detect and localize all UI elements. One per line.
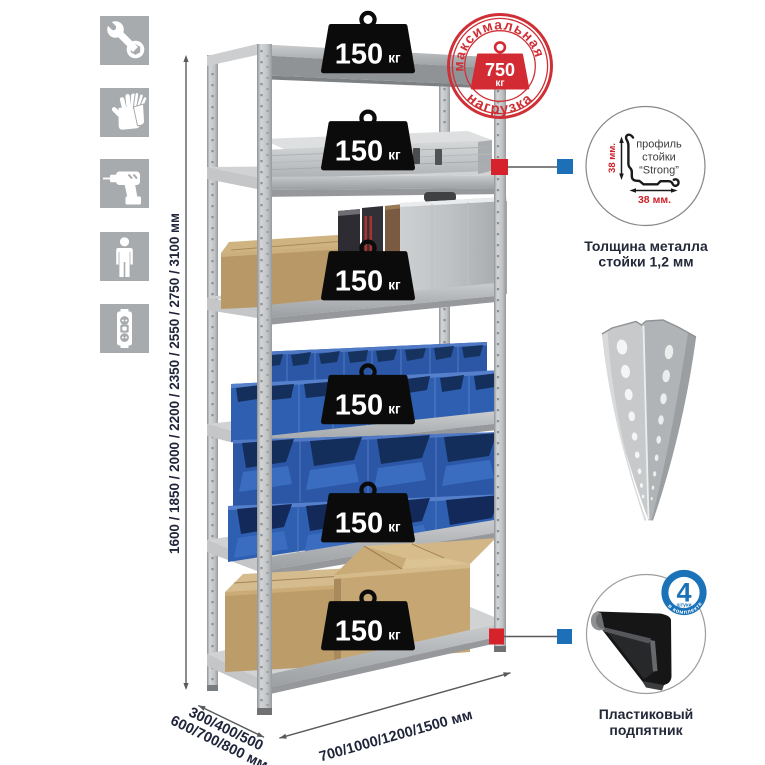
svg-text:кг: кг bbox=[388, 51, 401, 66]
svg-text:кг: кг bbox=[388, 520, 401, 535]
svg-text:Толщина металла: Толщина металла bbox=[584, 238, 708, 254]
svg-text:38 мм.: 38 мм. bbox=[638, 194, 671, 206]
svg-text:150: 150 bbox=[335, 616, 383, 648]
svg-text:подпятник: подпятник bbox=[609, 722, 683, 738]
svg-text:150: 150 bbox=[335, 389, 383, 421]
svg-text:кг: кг bbox=[388, 148, 401, 163]
svg-text:кг: кг bbox=[495, 78, 504, 89]
svg-text:38 мм.: 38 мм. bbox=[607, 143, 618, 173]
svg-text:700/1000/1200/1500 мм: 700/1000/1200/1500 мм bbox=[317, 707, 474, 765]
svg-text:стойки 1,2 мм: стойки 1,2 мм bbox=[598, 254, 693, 270]
svg-text:150: 150 bbox=[335, 136, 383, 168]
svg-text:750: 750 bbox=[485, 60, 515, 80]
svg-text:1600 / 1850 / 2000 / 2200 / 23: 1600 / 1850 / 2000 / 2200 / 2350 / 2550 … bbox=[167, 213, 182, 554]
svg-text:штуки: штуки bbox=[676, 602, 691, 608]
svg-text:кг: кг bbox=[388, 278, 401, 293]
svg-text:кг: кг bbox=[388, 401, 401, 416]
svg-text:Пластиковый: Пластиковый bbox=[599, 706, 694, 722]
svg-text:профиль: профиль bbox=[636, 139, 682, 151]
svg-text:150: 150 bbox=[335, 266, 383, 298]
svg-text:стойки: стойки bbox=[642, 152, 676, 164]
svg-text:кг: кг bbox=[388, 628, 401, 643]
svg-text:“Strong”: “Strong” bbox=[639, 165, 679, 177]
svg-text:150: 150 bbox=[335, 508, 383, 540]
svg-text:150: 150 bbox=[335, 39, 383, 71]
